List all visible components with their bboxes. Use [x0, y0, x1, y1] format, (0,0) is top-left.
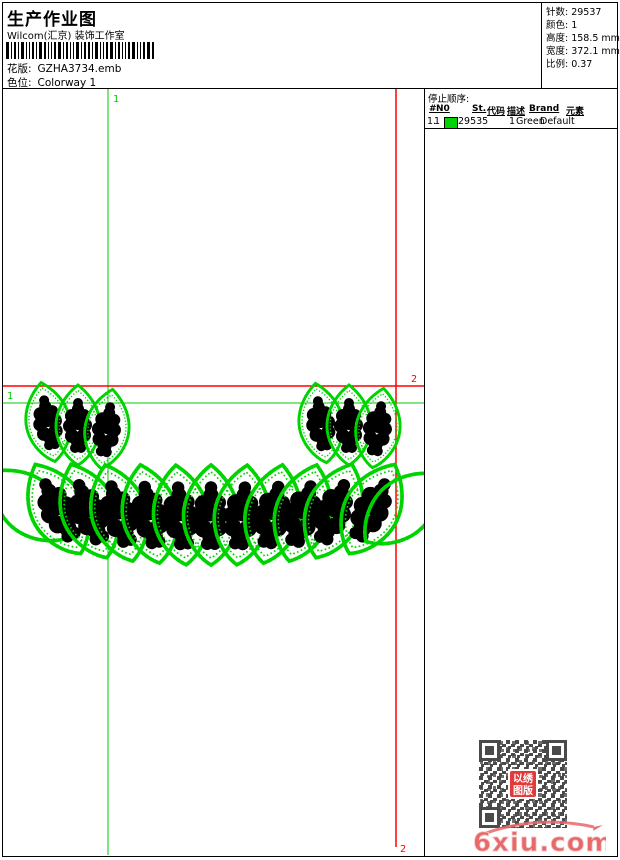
design-file-value: GZHA3734.emb: [38, 63, 122, 75]
row-code: 1: [509, 116, 515, 127]
col-header-brand: Brand: [529, 104, 559, 114]
col-header-n0: N0: [436, 104, 450, 114]
col-header-code: 代码: [487, 104, 505, 117]
qr-finder-top-left: [479, 740, 500, 761]
barcode: [6, 42, 156, 59]
color-count-row: 颜色:1: [546, 19, 617, 32]
height-value: 158.5 mm: [571, 33, 620, 44]
design-file-row: 花版:GZHA3734.emb: [7, 61, 121, 76]
width-row: 宽度:372.1 mm: [546, 45, 617, 58]
row-n0: 1: [434, 116, 440, 127]
scale-row: 比例:0.37: [546, 58, 617, 71]
height-label: 高度:: [546, 33, 568, 44]
colorway-value: Colorway 1: [38, 77, 97, 89]
leaf-cluster-top-right: [294, 380, 406, 470]
side-panel: 停止顺序: # N0 St. 代码 描述 Brand 元素 1. 1 29535…: [425, 89, 617, 856]
col-header-st: St.: [472, 104, 486, 114]
scale-value: 0.37: [571, 59, 592, 70]
header-left-block: 生产作业图 Wilcom(汇京) 装饰工作室: [3, 3, 541, 88]
start-marker-left: 1: [7, 391, 13, 402]
end-marker-bottom: 2: [400, 844, 406, 855]
stitch-count-row: 针数:29537: [546, 6, 617, 19]
embroidery-design-svg: 1 1 2 2: [3, 89, 424, 855]
logo-text: 6xiu.com: [473, 828, 606, 858]
stitch-count-label: 针数:: [546, 7, 568, 18]
leaf-cluster-top-left: [19, 379, 134, 472]
design-canvas: 1 1 2 2: [3, 89, 425, 856]
row-brand: Default: [540, 116, 575, 127]
stamp-text-line2: 图版: [513, 784, 533, 797]
company-name: Wilcom(汇京) 装饰工作室: [7, 27, 125, 42]
colorway-label: 色位:: [7, 77, 32, 89]
watermark-logo: 6xiu.com: [472, 818, 606, 858]
production-worksheet-page: 生产作业图 Wilcom(汇京) 装饰工作室: [2, 2, 618, 857]
qr-finder-top-right: [546, 740, 567, 761]
qr-center-stamp: 以绣 图版: [508, 769, 538, 799]
stitch-count-value: 29537: [571, 7, 601, 18]
scale-label: 比例:: [546, 59, 568, 70]
leaf-garland-bottom: [3, 451, 424, 569]
color-count-value: 1: [571, 20, 577, 31]
width-value: 372.1 mm: [571, 46, 620, 57]
header: 生产作业图 Wilcom(汇京) 装饰工作室: [3, 3, 617, 89]
color-count-label: 颜色:: [546, 20, 568, 31]
table-row-separator: [425, 128, 617, 129]
height-row: 高度:158.5 mm: [546, 32, 617, 45]
design-info-panel: 针数:29537 颜色:1 高度:158.5 mm 宽度:372.1 mm 比例…: [541, 3, 617, 88]
design-file-label: 花版:: [7, 63, 32, 75]
qr-code: 以绣 图版: [479, 740, 567, 828]
start-marker-top: 1: [113, 94, 119, 105]
main-area: 1 1 2 2: [3, 89, 617, 856]
end-marker-right: 2: [411, 374, 417, 385]
stamp-text-line1: 以绣: [513, 772, 534, 785]
colorway-row: 色位:Colorway 1: [7, 75, 96, 90]
width-label: 宽度:: [546, 46, 568, 57]
row-stitches: 29535: [458, 116, 488, 127]
stop-sequence-title: 停止顺序:: [428, 91, 469, 105]
